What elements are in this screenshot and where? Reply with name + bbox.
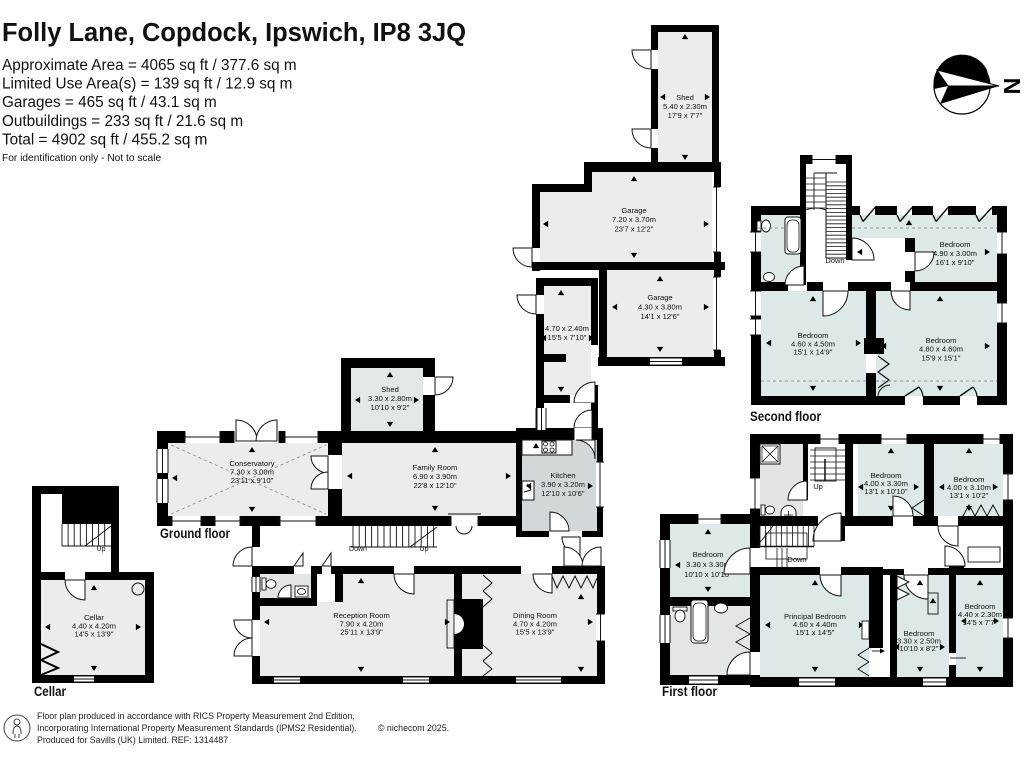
svg-text:Floor plan produced in accorda: Floor plan produced in accordance with R… [37,711,355,721]
svg-text:3.30 x 3.30m: 3.30 x 3.30m [686,560,730,569]
svg-text:7.20 x 3.70m: 7.20 x 3.70m [612,215,656,224]
svg-text:Up: Up [813,482,823,491]
svg-text:14'1 x 12'6": 14'1 x 12'6" [641,312,680,321]
svg-text:14'5 x 13'9": 14'5 x 13'9" [75,630,114,639]
svg-text:For identification only - Not: For identification only - Not to scale [2,153,161,164]
svg-text:13'1 x 10'2": 13'1 x 10'2" [950,491,989,500]
svg-text:13'1 x 10'10": 13'1 x 10'10" [864,487,907,496]
svg-text:Family Room: Family Room [413,463,458,472]
svg-text:Total = 4902 sq ft / 455.2 sq: Total = 4902 sq ft / 455.2 sq m [2,131,207,148]
svg-text:Cellar: Cellar [34,684,67,699]
svg-text:Kitchen: Kitchen [550,471,575,480]
svg-text:5.40 x 2.30m: 5.40 x 2.30m [663,102,707,111]
svg-text:Ground floor: Ground floor [160,526,231,541]
svg-text:15'5 x 7'10": 15'5 x 7'10" [548,333,587,342]
svg-text:Down: Down [349,546,367,553]
svg-text:17'9 x 7'7": 17'9 x 7'7" [668,111,703,120]
svg-text:4.90 x 3.00m: 4.90 x 3.00m [933,249,977,258]
svg-text:N: N [999,78,1024,95]
svg-text:Approximate Area = 4065 sq ft: Approximate Area = 4065 sq ft / 377.6 sq… [2,57,297,74]
svg-text:Outbuildings = 233 sq ft / 21.: Outbuildings = 233 sq ft / 21.6 sq m [2,113,243,130]
svg-text:22'8 x 12'10": 22'8 x 12'10" [413,481,456,490]
svg-text:15'9 x 15'1": 15'9 x 15'1" [922,353,961,362]
svg-text:15'5 x 13'9": 15'5 x 13'9" [516,628,555,637]
svg-text:12'10 x 10'6": 12'10 x 10'6" [541,489,584,498]
svg-text:Up: Up [97,546,106,553]
svg-text:Bedroom: Bedroom [940,240,971,249]
svg-text:Produced for Savills (UK) Limi: Produced for Savills (UK) Limited. REF: … [37,735,228,745]
svg-text:3.90 x 3.20m: 3.90 x 3.20m [541,480,585,489]
svg-text:Up: Up [420,546,429,553]
svg-text:3.30 x 2.80m: 3.30 x 2.80m [368,394,412,403]
svg-text:Folly Lane, Copdock, Ipswich,: Folly Lane, Copdock, Ipswich, IP8 3JQ [2,19,466,47]
svg-text:Limited Use Area(s) = 139 sq f: Limited Use Area(s) = 139 sq ft / 12.9 s… [2,76,292,93]
svg-text:4.80 x 4.60m: 4.80 x 4.60m [919,345,963,354]
svg-text:14'5 x 7'7": 14'5 x 7'7" [963,618,998,627]
svg-text:Bedroom: Bedroom [926,336,957,345]
svg-text:Garages = 465 sq ft / 43.1 sq: Garages = 465 sq ft / 43.1 sq m [2,94,217,111]
svg-text:Shed: Shed [676,93,694,102]
svg-text:Garage: Garage [647,293,672,302]
svg-text:Garage: Garage [621,206,646,215]
svg-text:© nichecom 2025.: © nichecom 2025. [378,723,449,733]
svg-text:Shed: Shed [381,385,399,394]
svg-text:Bedroom: Bedroom [693,550,724,559]
svg-text:23'11 x 9'10": 23'11 x 9'10" [231,476,274,485]
svg-text:23'7 x 12'2": 23'7 x 12'2" [615,224,654,233]
svg-text:Second floor: Second floor [750,409,822,424]
svg-text:10'10 x 8'2": 10'10 x 8'2" [900,644,939,653]
svg-text:15'1 x 14'9": 15'1 x 14'9" [794,348,833,357]
svg-text:25'11 x 13'9": 25'11 x 13'9" [340,628,383,637]
svg-text:4.30 x 3.80m: 4.30 x 3.80m [638,303,682,312]
svg-text:Down: Down [825,256,844,265]
svg-text:10'10 x 9'2": 10'10 x 9'2" [371,403,410,412]
svg-text:6.90 x 3.90m: 6.90 x 3.90m [413,472,457,481]
svg-text:15'1 x 14'5": 15'1 x 14'5" [796,628,835,637]
svg-text:First floor: First floor [662,684,718,699]
svg-text:16'1 x 9'10": 16'1 x 9'10" [936,258,975,267]
svg-text:Down: Down [787,555,806,564]
svg-text:Incorporating International Pr: Incorporating International Property Mea… [37,723,357,733]
svg-text:4.70 x 2.40m: 4.70 x 2.40m [545,324,589,333]
